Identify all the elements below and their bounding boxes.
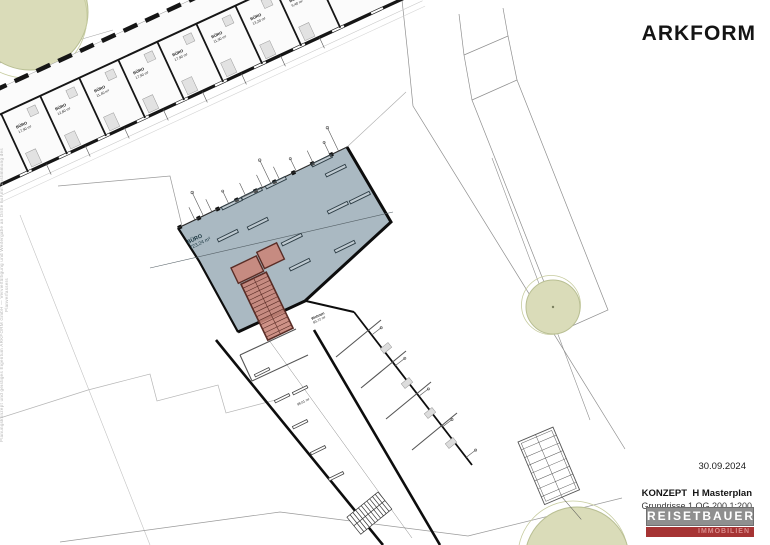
tree-right bbox=[522, 276, 581, 335]
title-block: 30.09.2024 KONZEPT H Masterplan Grundris… bbox=[641, 461, 754, 537]
wing-cross-walls bbox=[240, 320, 457, 538]
lower-wing: Wohnen 83,72 m² 98,61 m² bbox=[216, 301, 477, 545]
plan-sheet: Wohnen 83,72 m² 98,61 m² bbox=[0, 0, 770, 545]
project-title: KONZEPT H Masterplan bbox=[641, 488, 752, 499]
reisetbauer-logo: REISETBAUER IMMOBILIEN bbox=[646, 507, 754, 537]
brand-name: REISETBAUER bbox=[646, 507, 754, 526]
margin-copyright-note: Planungskonzept und geistiges Eigentum A… bbox=[0, 145, 9, 445]
wing-room-area: 98,61 m² bbox=[296, 397, 311, 407]
brand-division: IMMOBILIEN bbox=[646, 527, 754, 537]
arkform-logo: ARKFORM bbox=[642, 22, 756, 46]
tree-bottomright bbox=[518, 501, 629, 545]
wing-hatch-bars bbox=[254, 368, 343, 481]
sheet-date: 30.09.2024 bbox=[641, 461, 746, 472]
